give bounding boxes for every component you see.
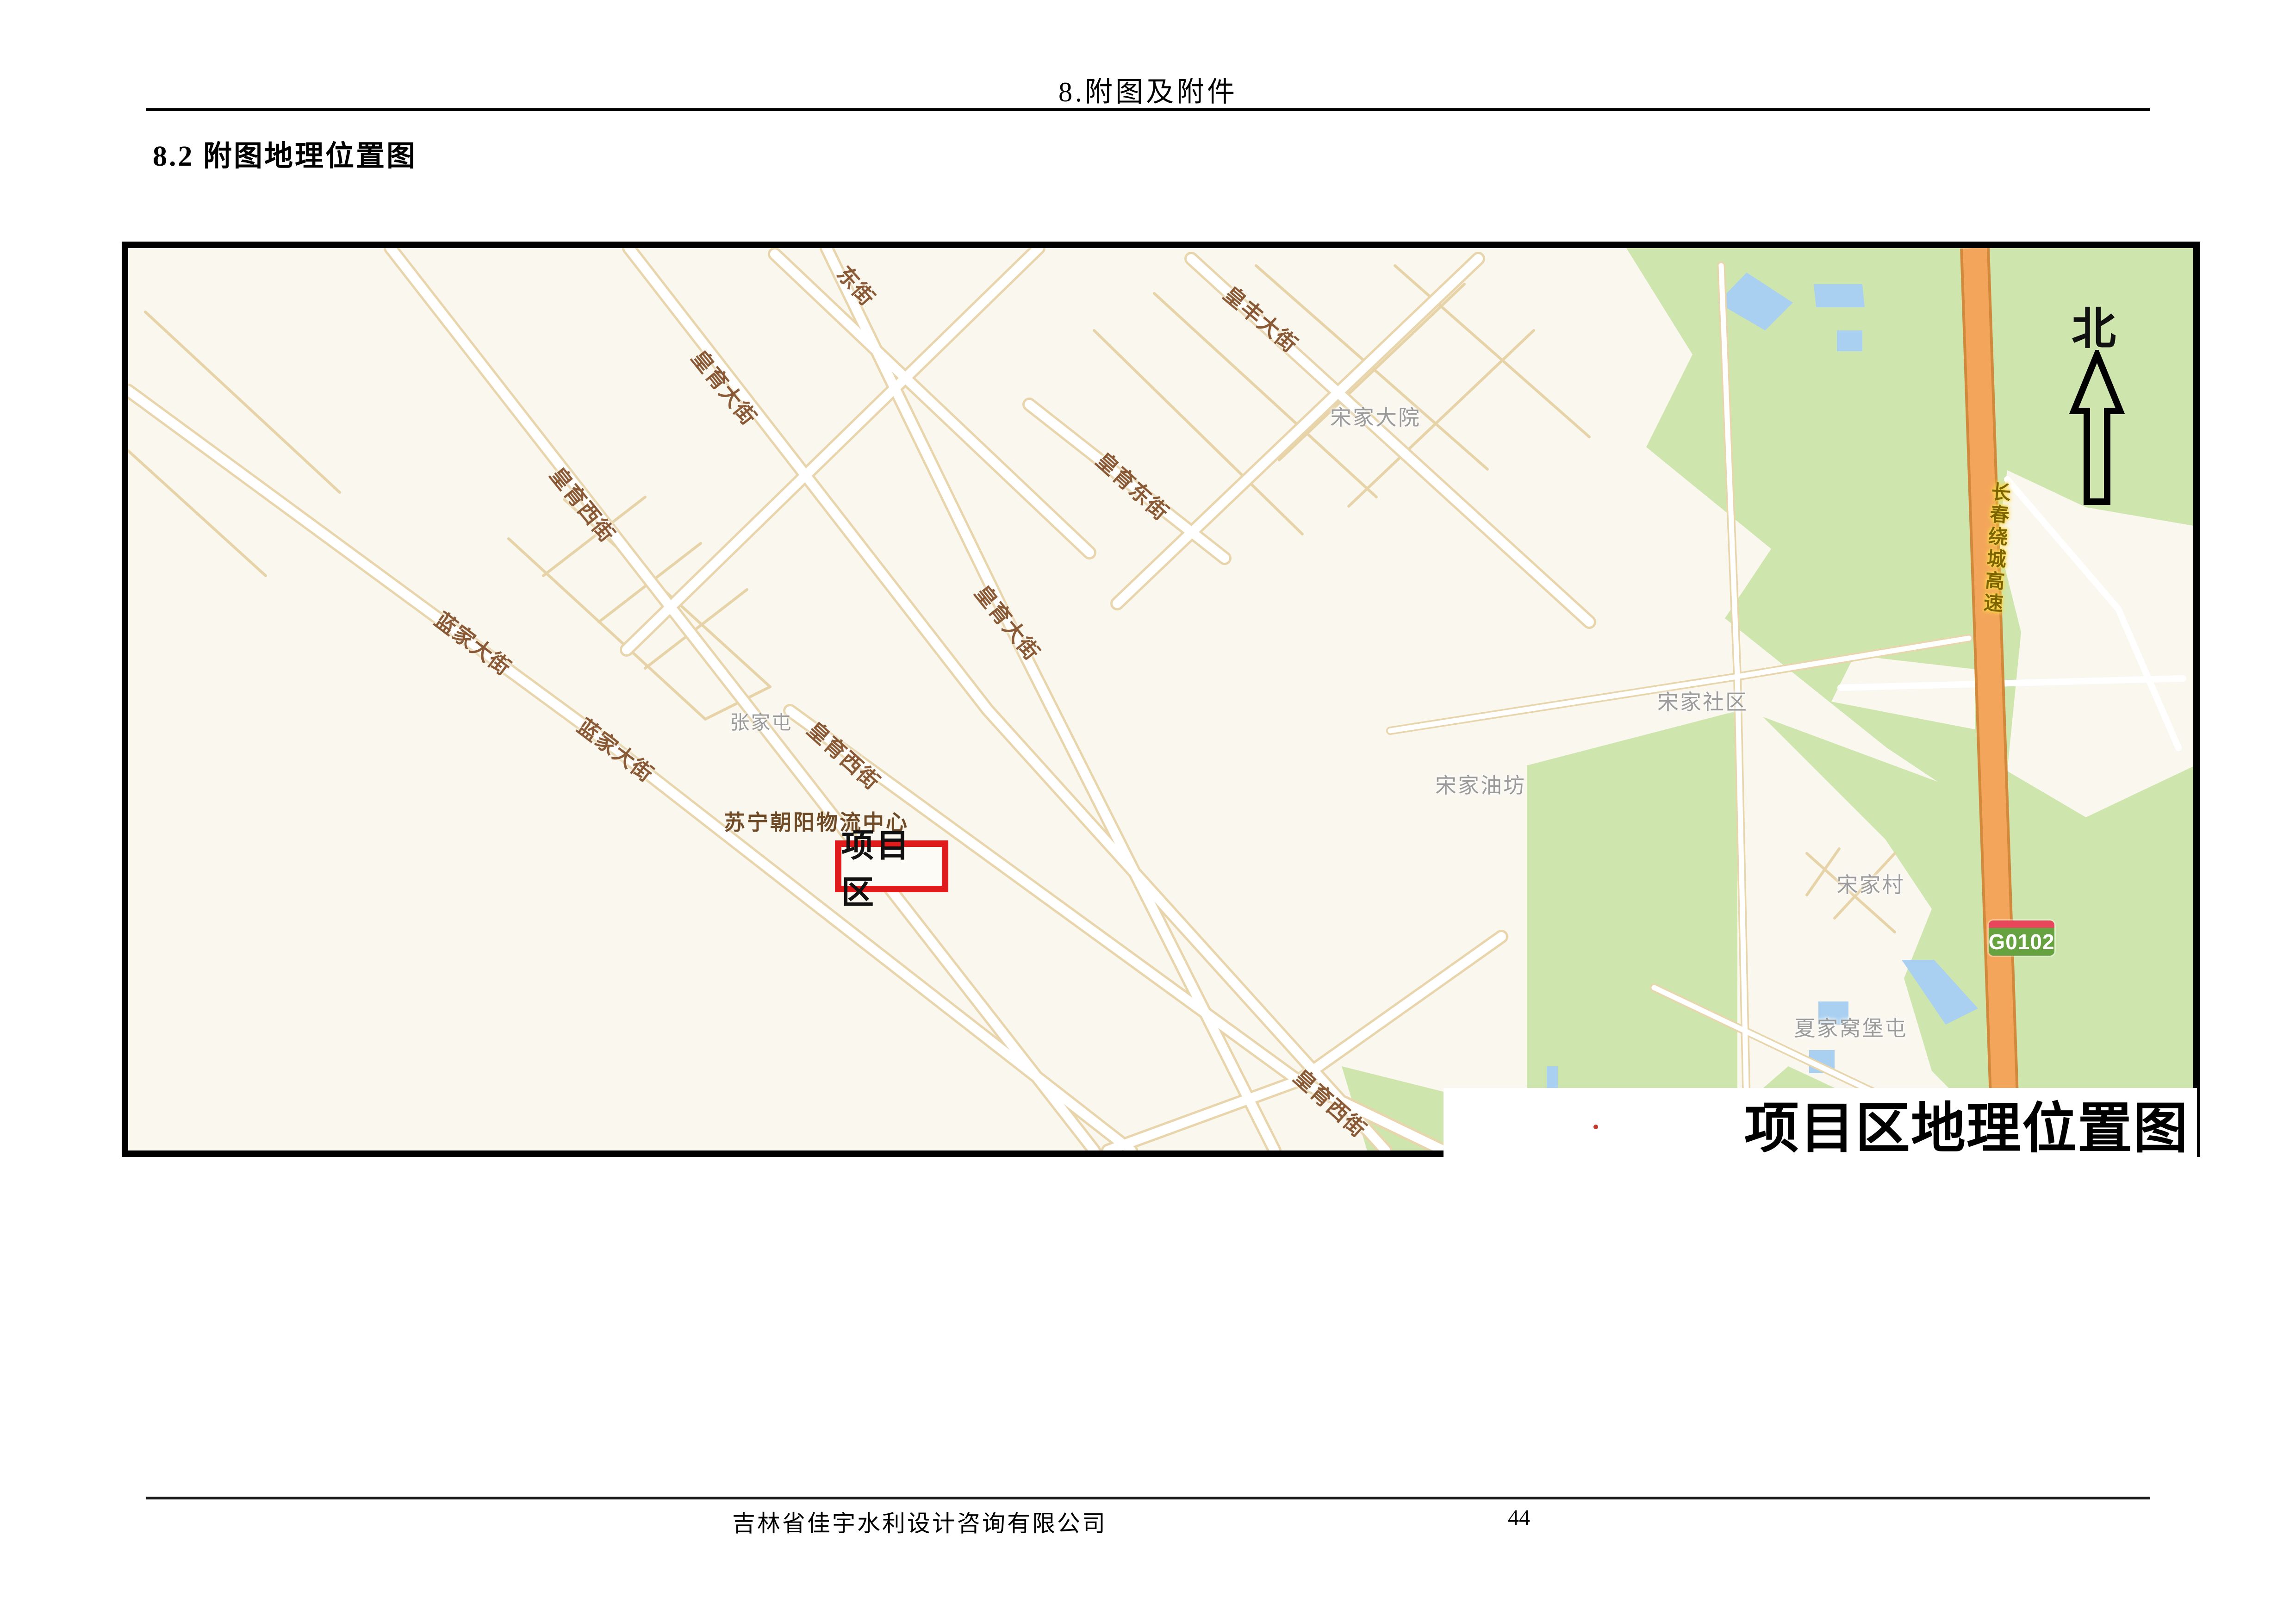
place-label: 张家屯: [730, 707, 792, 735]
map-title-block: 项目区地理位置图: [1444, 1088, 2197, 1158]
page-number: 44: [1508, 1505, 1530, 1530]
page-header: 8.附图及附件: [0, 69, 2296, 110]
project-area-label: 项目区: [841, 820, 942, 913]
north-label: 北: [2072, 293, 2116, 357]
document-page: { "page": { "header": "8.附图及附件", "sectio…: [0, 0, 2296, 1623]
road-number-badge: G0102: [1989, 920, 2054, 956]
badge-number: G0102: [1989, 928, 2054, 956]
badge-red-bar: [1989, 920, 2054, 928]
footer-company: 吉林省佳宇水利设计咨询有限公司: [732, 1505, 1107, 1538]
section-heading: 8.2 附图地理位置图: [153, 132, 417, 174]
north-arrow-icon: [2067, 350, 2127, 507]
place-label: 宋家村: [1837, 868, 1905, 899]
place-label: 宋家社区: [1657, 685, 1748, 716]
place-label: 宋家大院: [1330, 401, 1421, 431]
project-area-box: 项目区: [835, 840, 948, 892]
map-title: 项目区地理位置图: [1744, 1084, 2189, 1163]
footer-rule: [146, 1497, 2150, 1499]
place-label: 宋家油坊: [1435, 769, 1526, 799]
place-label: 夏家窝堡屯: [1794, 1012, 1908, 1042]
location-map-figure: 东街 皇丰大街 皇育大街 皇育西街 皇育东街 皇育大街 蓝家大街 蓝家大街 皇育…: [122, 242, 2200, 1157]
header-rule: [146, 108, 2150, 111]
red-dot-mark: [1593, 1125, 1598, 1129]
